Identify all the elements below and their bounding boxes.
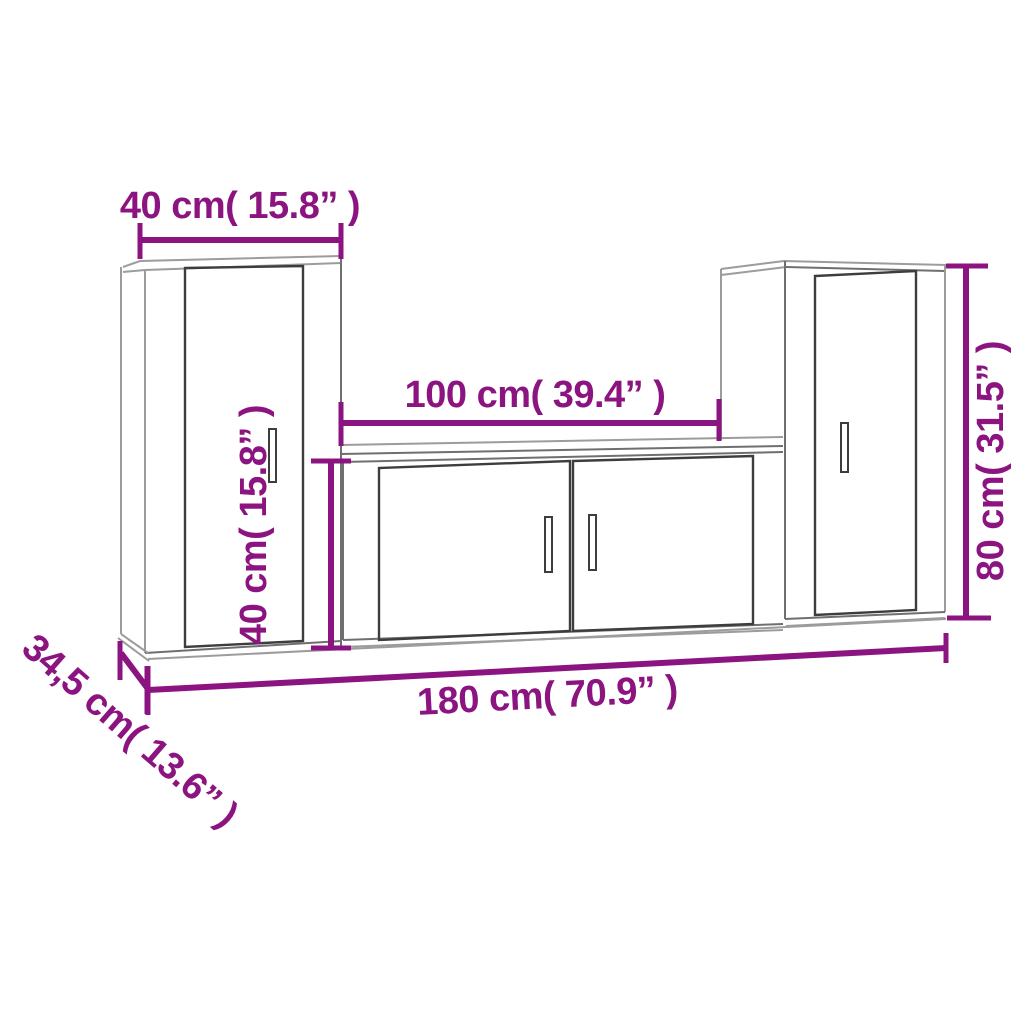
dim-middle-cabinet-height-label: 40 cm( 15.8” ) (233, 405, 275, 645)
dim-depth: 34,5 cm( 13.6” ) (14, 626, 246, 835)
dimension-annotations: 40 cm( 15.8” ) 100 cm( 39.4” ) 40 cm( 15… (14, 185, 1012, 836)
middle-cabinet-left-door-handle (545, 517, 552, 572)
dim-depth-label: 34,5 cm( 13.6” ) (14, 626, 246, 835)
right-cabinet-door-panel (815, 271, 916, 615)
left-cabinet-top-back-edge (123, 256, 341, 267)
middle-cabinet-right-door-handle (589, 515, 596, 570)
right-cabinet-door-handle (841, 423, 848, 472)
furniture-dimension-diagram: 40 cm( 15.8” ) 100 cm( 39.4” ) 40 cm( 15… (0, 0, 1024, 1024)
right-cabinet-base-edge (786, 618, 945, 626)
left-cabinet (118, 256, 341, 661)
right-cabinet-face-top-edge (786, 267, 945, 271)
dim-left-cabinet-width-label: 40 cm( 15.8” ) (120, 185, 360, 227)
middle-cabinet-right-door-panel (573, 456, 753, 631)
diagram-canvas: 40 cm( 15.8” ) 100 cm( 39.4” ) 40 cm( 15… (0, 0, 1024, 1024)
dim-left-cabinet-width: 40 cm( 15.8” ) (120, 185, 360, 259)
dim-middle-cabinet-width: 100 cm( 39.4” ) (341, 374, 719, 446)
dim-middle-cabinet-width-label: 100 cm( 39.4” ) (405, 374, 666, 416)
dim-right-cabinet-height-label: 80 cm( 31.5” ) (970, 341, 1012, 581)
dim-total-width: 180 cm( 70.9” ) (148, 633, 946, 724)
middle-cabinet-left-door-panel (379, 461, 570, 640)
dim-middle-cabinet-height: 40 cm( 15.8” ) (233, 405, 351, 649)
dim-right-cabinet-height: 80 cm( 31.5” ) (946, 266, 1012, 618)
right-cabinet (721, 261, 947, 626)
